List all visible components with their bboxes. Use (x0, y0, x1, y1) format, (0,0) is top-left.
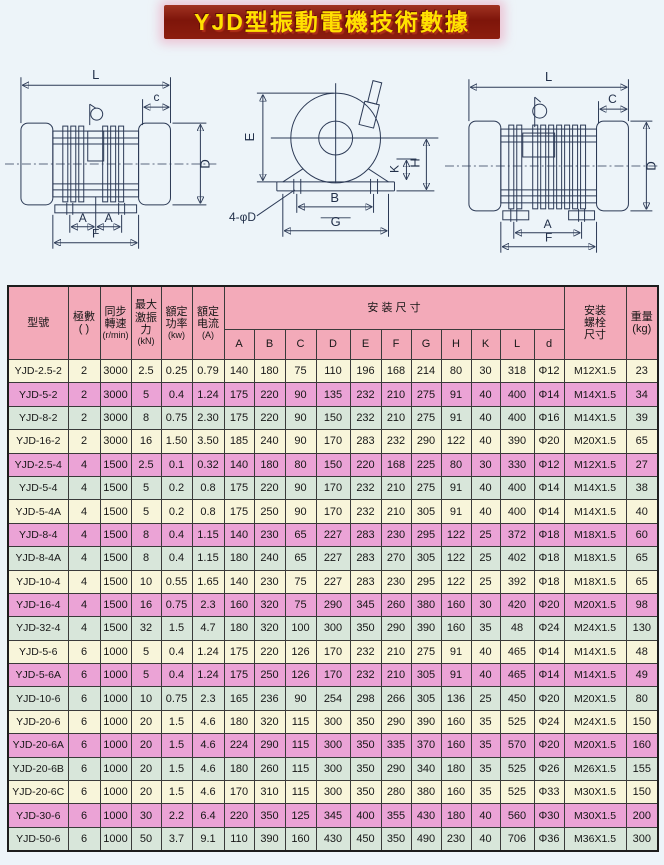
value-cell: 180 (224, 710, 254, 733)
value-cell: 0.8 (192, 476, 224, 499)
value-cell: 2.2 (161, 804, 192, 827)
value-cell: 180 (254, 360, 285, 383)
value-cell: 1500 (100, 523, 131, 546)
value-cell: 305 (411, 547, 441, 570)
value-cell: Φ16 (534, 406, 564, 429)
value-cell: 110 (224, 827, 254, 851)
value-cell: 220 (254, 383, 285, 406)
value-cell: Φ20 (534, 593, 564, 616)
value-cell: 0.4 (161, 383, 192, 406)
value-cell: 3000 (100, 430, 131, 453)
value-cell: 1.5 (161, 734, 192, 757)
value-cell: 60 (626, 523, 658, 546)
value-cell: 196 (350, 360, 381, 383)
spec-table-wrapper: 型號 極數( ) 同步轉速(r/min) 最大激振力(kN) 額定功率(kw) … (0, 271, 664, 852)
value-cell: 6 (68, 781, 100, 804)
value-cell: 175 (224, 664, 254, 687)
value-cell: 185 (224, 430, 254, 453)
value-cell: 300 (316, 781, 350, 804)
value-cell: 706 (500, 827, 534, 851)
value-cell: 4 (68, 500, 100, 523)
value-cell: Φ18 (534, 570, 564, 593)
value-cell: 220 (254, 476, 285, 499)
value-cell: 6 (68, 640, 100, 663)
value-cell: 275 (411, 640, 441, 663)
value-cell: 0.4 (161, 664, 192, 687)
value-cell: 1500 (100, 593, 131, 616)
motor-front-view-diagram: E K H B G 4-φD (221, 41, 440, 269)
value-cell: 1000 (100, 781, 131, 804)
value-cell: 30 (471, 593, 500, 616)
table-row: YJD-5-22300050.41.2417522090135232210275… (8, 383, 658, 406)
value-cell: 165 (224, 687, 254, 710)
value-cell: M14X1.5 (564, 640, 626, 663)
dim-label-F: F (545, 231, 552, 245)
value-cell: 260 (381, 593, 411, 616)
model-cell: YJD-2.5-4 (8, 453, 68, 476)
value-cell: 1000 (100, 827, 131, 851)
value-cell: 170 (316, 476, 350, 499)
value-cell: 0.75 (161, 406, 192, 429)
value-cell: 1.24 (192, 383, 224, 406)
value-cell: 10 (131, 570, 161, 593)
value-cell: 290 (381, 757, 411, 780)
value-cell: 175 (224, 383, 254, 406)
dim-label-D: D (643, 161, 658, 170)
value-cell: 1.5 (161, 781, 192, 804)
value-cell: 4 (68, 476, 100, 499)
value-cell: Φ20 (534, 687, 564, 710)
value-cell: 4 (68, 617, 100, 640)
value-cell: 175 (224, 500, 254, 523)
value-cell: 25 (471, 547, 500, 570)
value-cell: 2.3 (192, 687, 224, 710)
value-cell: Φ14 (534, 640, 564, 663)
model-cell: YJD-10-4 (8, 570, 68, 593)
value-cell: 210 (381, 476, 411, 499)
value-cell: 4 (68, 453, 100, 476)
value-cell: 25 (471, 570, 500, 593)
value-cell: 450 (350, 827, 381, 851)
value-cell: Φ24 (534, 710, 564, 733)
value-cell: 3.50 (192, 430, 224, 453)
value-cell: 430 (411, 804, 441, 827)
value-cell: 2.5 (131, 453, 161, 476)
value-cell: 32 (131, 617, 161, 640)
value-cell: 90 (285, 406, 316, 429)
table-row: YJD-20-6A61000201.54.6224290115300350335… (8, 734, 658, 757)
model-cell: YJD-10-6 (8, 687, 68, 710)
value-cell: 40 (471, 406, 500, 429)
value-cell: M20X1.5 (564, 593, 626, 616)
value-cell: 320 (254, 617, 285, 640)
table-row: YJD-8-22300080.752.301752209015023221027… (8, 406, 658, 429)
value-cell: 372 (500, 523, 534, 546)
value-cell: 65 (626, 570, 658, 593)
value-cell: 90 (285, 430, 316, 453)
value-cell: 490 (411, 827, 441, 851)
value-cell: 318 (500, 360, 534, 383)
value-cell: 295 (411, 523, 441, 546)
value-cell: 6 (68, 687, 100, 710)
value-cell: 4.6 (192, 781, 224, 804)
value-cell: 6 (68, 827, 100, 851)
value-cell: 170 (316, 500, 350, 523)
value-cell: 220 (224, 804, 254, 827)
value-cell: 350 (350, 781, 381, 804)
value-cell: 180 (224, 757, 254, 780)
value-cell: 1.50 (161, 430, 192, 453)
value-cell: Φ33 (534, 781, 564, 804)
value-cell: 345 (350, 593, 381, 616)
value-cell: M20X1.5 (564, 687, 626, 710)
value-cell: 1500 (100, 500, 131, 523)
value-cell: 2.5 (131, 360, 161, 383)
value-cell: 0.4 (161, 547, 192, 570)
header-model: 型號 (8, 286, 68, 360)
value-cell: 91 (441, 640, 471, 663)
value-cell: Φ30 (534, 804, 564, 827)
table-row: YJD-10-441500100.551.6514023075227283230… (8, 570, 658, 593)
value-cell: 283 (350, 547, 381, 570)
value-cell: 290 (381, 710, 411, 733)
value-cell: 283 (350, 570, 381, 593)
value-cell: 1500 (100, 547, 131, 570)
value-cell: Φ36 (534, 827, 564, 851)
value-cell: M30X1.5 (564, 781, 626, 804)
value-cell: 80 (441, 453, 471, 476)
value-cell: 305 (411, 664, 441, 687)
value-cell: 525 (500, 781, 534, 804)
value-cell: 40 (471, 476, 500, 499)
value-cell: 230 (441, 827, 471, 851)
value-cell: 300 (316, 734, 350, 757)
dim-label-A: A (543, 217, 551, 231)
value-cell: M24X1.5 (564, 617, 626, 640)
value-cell: 1500 (100, 617, 131, 640)
dim-label-F: F (92, 227, 99, 241)
value-cell: 283 (350, 523, 381, 546)
value-cell: 91 (441, 500, 471, 523)
value-cell: 275 (411, 406, 441, 429)
model-cell: YJD-20-6B (8, 757, 68, 780)
value-cell: 560 (500, 804, 534, 827)
value-cell: 30 (471, 453, 500, 476)
value-cell: M18X1.5 (564, 570, 626, 593)
value-cell: 140 (224, 360, 254, 383)
dim-label-C: C (608, 92, 617, 106)
spec-table: 型號 極數( ) 同步轉速(r/min) 最大激振力(kN) 額定功率(kw) … (7, 285, 659, 852)
value-cell: 8 (131, 547, 161, 570)
header-dim-F: F (381, 330, 411, 360)
table-row: YJD-20-661000201.54.61803201153003502903… (8, 710, 658, 733)
value-cell: 232 (350, 500, 381, 523)
value-cell: Φ26 (534, 757, 564, 780)
value-cell: 35 (471, 710, 500, 733)
value-cell: 170 (316, 640, 350, 663)
value-cell: 380 (411, 781, 441, 804)
value-cell: 1500 (100, 453, 131, 476)
table-row: YJD-10-661000100.752.3165236902542982663… (8, 687, 658, 710)
value-cell: 155 (626, 757, 658, 780)
value-cell: 35 (471, 781, 500, 804)
value-cell: 275 (411, 383, 441, 406)
value-cell: 16 (131, 593, 161, 616)
datasheet-page: YJD型振動電機技術數據 L c D (0, 5, 664, 865)
value-cell: 140 (224, 523, 254, 546)
header-dim-K: K (471, 330, 500, 360)
value-cell: Φ12 (534, 360, 564, 383)
value-cell: 135 (316, 383, 350, 406)
value-cell: 310 (254, 781, 285, 804)
value-cell: 0.1 (161, 453, 192, 476)
value-cell: 4 (68, 570, 100, 593)
diagram-row: L c D A A F (0, 41, 664, 271)
value-cell: 25 (471, 523, 500, 546)
value-cell: 0.32 (192, 453, 224, 476)
value-cell: M14X1.5 (564, 476, 626, 499)
value-cell: 0.75 (161, 593, 192, 616)
value-cell: 210 (381, 640, 411, 663)
value-cell: 3.7 (161, 827, 192, 851)
value-cell: 350 (350, 757, 381, 780)
value-cell: 390 (411, 617, 441, 640)
value-cell: 40 (471, 640, 500, 663)
value-cell: 90 (285, 383, 316, 406)
value-cell: 525 (500, 710, 534, 733)
value-cell: 90 (285, 500, 316, 523)
value-cell: 180 (224, 617, 254, 640)
model-cell: YJD-5-6A (8, 664, 68, 687)
value-cell: 225 (411, 453, 441, 476)
value-cell: 35 (471, 734, 500, 757)
value-cell: 40 (471, 827, 500, 851)
value-cell: 345 (316, 804, 350, 827)
table-row: YJD-2.5-4415002.50.10.321401808015022016… (8, 453, 658, 476)
value-cell: 30 (471, 360, 500, 383)
table-row: YJD-32-441500321.54.71803201003003502903… (8, 617, 658, 640)
value-cell: 300 (316, 617, 350, 640)
value-cell: 350 (350, 617, 381, 640)
value-cell: 227 (316, 570, 350, 593)
header-install-dims: 安 装 尺 寸 (224, 286, 564, 330)
value-cell: 465 (500, 640, 534, 663)
header-dim-D: D (316, 330, 350, 360)
value-cell: M12X1.5 (564, 453, 626, 476)
value-cell: 150 (316, 453, 350, 476)
value-cell: 400 (500, 406, 534, 429)
value-cell: 75 (285, 593, 316, 616)
value-cell: 0.55 (161, 570, 192, 593)
value-cell: 6 (68, 710, 100, 733)
value-cell: Φ14 (534, 500, 564, 523)
value-cell: M30X1.5 (564, 804, 626, 827)
value-cell: 390 (500, 430, 534, 453)
value-cell: 4 (68, 593, 100, 616)
value-cell: 34 (626, 383, 658, 406)
value-cell: 170 (316, 430, 350, 453)
value-cell: 91 (441, 383, 471, 406)
value-cell: 115 (285, 734, 316, 757)
header-dim-G: G (411, 330, 441, 360)
value-cell: 150 (626, 781, 658, 804)
value-cell: 136 (441, 687, 471, 710)
value-cell: 75 (285, 570, 316, 593)
value-cell: 1.5 (161, 710, 192, 733)
value-cell: 1.15 (192, 547, 224, 570)
value-cell: 160 (441, 734, 471, 757)
value-cell: 298 (350, 687, 381, 710)
value-cell: Φ14 (534, 476, 564, 499)
value-cell: 180 (224, 547, 254, 570)
value-cell: 168 (381, 453, 411, 476)
header-force: 最大激振力(kN) (131, 286, 161, 360)
value-cell: 9.1 (192, 827, 224, 851)
value-cell: 6 (68, 664, 100, 687)
value-cell: 295 (411, 570, 441, 593)
value-cell: 2 (68, 360, 100, 383)
table-row: YJD-5-66100050.41.2417522012617023221027… (8, 640, 658, 663)
value-cell: 0.8 (192, 500, 224, 523)
table-row: YJD-16-441500160.752.3160320752903452603… (8, 593, 658, 616)
value-cell: 150 (626, 710, 658, 733)
value-cell: 175 (224, 476, 254, 499)
value-cell: 232 (350, 383, 381, 406)
value-cell: 232 (381, 430, 411, 453)
value-cell: 275 (411, 476, 441, 499)
dim-label-H: H (408, 158, 423, 167)
value-cell: 350 (254, 804, 285, 827)
value-cell: 3000 (100, 406, 131, 429)
value-cell: 300 (316, 757, 350, 780)
dim-label-K: K (388, 165, 402, 173)
header-dim-H: H (441, 330, 471, 360)
value-cell: 40 (471, 804, 500, 827)
value-cell: 25 (471, 687, 500, 710)
value-cell: 320 (254, 593, 285, 616)
value-cell: 340 (411, 757, 441, 780)
value-cell: 227 (316, 523, 350, 546)
value-cell: 266 (381, 687, 411, 710)
header-dim-d: d (534, 330, 564, 360)
value-cell: 0.79 (192, 360, 224, 383)
value-cell: 4 (68, 547, 100, 570)
value-cell: 220 (254, 640, 285, 663)
value-cell: 40 (471, 500, 500, 523)
header-poles: 極數( ) (68, 286, 100, 360)
value-cell: Φ18 (534, 547, 564, 570)
value-cell: 214 (411, 360, 441, 383)
header-bolt: 安装螺栓尺寸 (564, 286, 626, 360)
value-cell: 270 (381, 547, 411, 570)
value-cell: 355 (381, 804, 411, 827)
value-cell: 90 (285, 687, 316, 710)
dim-label-D: D (197, 159, 212, 168)
value-cell: M14X1.5 (564, 500, 626, 523)
header-dim-E: E (350, 330, 381, 360)
value-cell: 200 (626, 804, 658, 827)
value-cell: 5 (131, 383, 161, 406)
model-cell: YJD-5-4A (8, 500, 68, 523)
value-cell: 230 (381, 523, 411, 546)
value-cell: 110 (316, 360, 350, 383)
value-cell: 38 (626, 476, 658, 499)
value-cell: 8 (131, 406, 161, 429)
value-cell: 20 (131, 710, 161, 733)
value-cell: 115 (285, 781, 316, 804)
model-cell: YJD-30-6 (8, 804, 68, 827)
value-cell: 35 (471, 617, 500, 640)
value-cell: 49 (626, 664, 658, 687)
value-cell: 40 (471, 664, 500, 687)
table-row: YJD-20-6C61000201.54.6170310115300350280… (8, 781, 658, 804)
value-cell: 400 (350, 804, 381, 827)
model-cell: YJD-20-6 (8, 710, 68, 733)
value-cell: 525 (500, 757, 534, 780)
value-cell: 4.6 (192, 734, 224, 757)
value-cell: 1000 (100, 687, 131, 710)
value-cell: 1500 (100, 570, 131, 593)
value-cell: 320 (254, 710, 285, 733)
dim-label-L: L (545, 69, 552, 84)
dim-label-holes: 4-φD (229, 210, 256, 224)
value-cell: 2.30 (192, 406, 224, 429)
value-cell: M14X1.5 (564, 383, 626, 406)
value-cell: 0.75 (161, 687, 192, 710)
value-cell: 91 (441, 664, 471, 687)
value-cell: 450 (500, 687, 534, 710)
value-cell: 3000 (100, 383, 131, 406)
value-cell: 175 (224, 640, 254, 663)
value-cell: 8 (131, 523, 161, 546)
value-cell: 220 (254, 406, 285, 429)
value-cell: 400 (500, 383, 534, 406)
model-cell: YJD-20-6C (8, 781, 68, 804)
value-cell: 1000 (100, 640, 131, 663)
value-cell: 0.25 (161, 360, 192, 383)
value-cell: 0.2 (161, 500, 192, 523)
value-cell: 80 (285, 453, 316, 476)
value-cell: 160 (441, 781, 471, 804)
value-cell: 1.5 (161, 617, 192, 640)
value-cell: 305 (411, 687, 441, 710)
dim-label-A2: A (105, 211, 113, 225)
page-title-bar: YJD型振動電機技術數據 (164, 5, 500, 39)
value-cell: 10 (131, 687, 161, 710)
value-cell: 126 (285, 640, 316, 663)
header-dim-A: A (224, 330, 254, 360)
value-cell: 254 (316, 687, 350, 710)
value-cell: M26X1.5 (564, 757, 626, 780)
value-cell: 350 (350, 710, 381, 733)
header-power: 額定功率(kw) (161, 286, 192, 360)
value-cell: 40 (626, 500, 658, 523)
value-cell: 140 (224, 570, 254, 593)
value-cell: 48 (500, 617, 534, 640)
value-cell: 224 (224, 734, 254, 757)
value-cell: 160 (224, 593, 254, 616)
value-cell: 230 (381, 570, 411, 593)
value-cell: 210 (381, 383, 411, 406)
value-cell: M18X1.5 (564, 523, 626, 546)
value-cell: 1000 (100, 804, 131, 827)
value-cell: 420 (500, 593, 534, 616)
value-cell: 122 (441, 523, 471, 546)
value-cell: Φ12 (534, 453, 564, 476)
value-cell: 1.24 (192, 640, 224, 663)
value-cell: 150 (316, 406, 350, 429)
value-cell: 283 (350, 430, 381, 453)
